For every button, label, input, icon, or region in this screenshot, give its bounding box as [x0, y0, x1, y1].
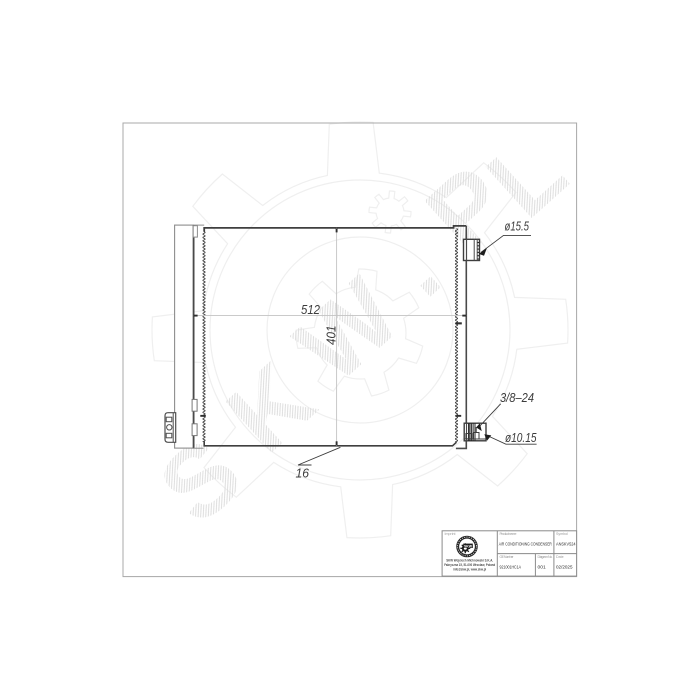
- svg-text:OE Number: OE Number: [500, 555, 515, 559]
- svg-text:ANSKV524: ANSKV524: [556, 541, 576, 547]
- svg-text:ø10.15: ø10.15: [505, 430, 537, 445]
- svg-text:921001HC1A: 921001HC1A: [500, 564, 522, 570]
- svg-text:02/2025: 02/2025: [556, 564, 573, 570]
- svg-text:info@skw.pl, www.skw.pl: info@skw.pl, www.skw.pl: [453, 568, 486, 572]
- svg-text:SKW: SKW: [464, 544, 473, 548]
- svg-text:ø15.5: ø15.5: [505, 219, 530, 234]
- svg-text:Symbol: Symbol: [556, 532, 568, 536]
- svg-text:3/8–24: 3/8–24: [500, 390, 534, 405]
- svg-text:Date: Date: [556, 555, 564, 559]
- svg-text:Product name: Product name: [500, 532, 517, 536]
- svg-text:Diagram No.: Diagram No.: [538, 555, 553, 559]
- svg-text:16: 16: [296, 466, 310, 481]
- svg-text:AIR CONDITIONING CONDENSER: AIR CONDITIONING CONDENSER: [499, 541, 552, 547]
- svg-text:512: 512: [301, 302, 321, 317]
- svg-text:401: 401: [324, 326, 339, 346]
- svg-text:SKW Wojciech Michnowski S.K.A.: SKW Wojciech Michnowski S.K.A.: [446, 559, 493, 563]
- svg-text:001: 001: [538, 564, 546, 570]
- svg-text:Imprint: Imprint: [445, 532, 456, 536]
- svg-text:Fabryczna 15, 51-000 Wroclaw,: Fabryczna 15, 51-000 Wroclaw, Poland: [444, 563, 495, 567]
